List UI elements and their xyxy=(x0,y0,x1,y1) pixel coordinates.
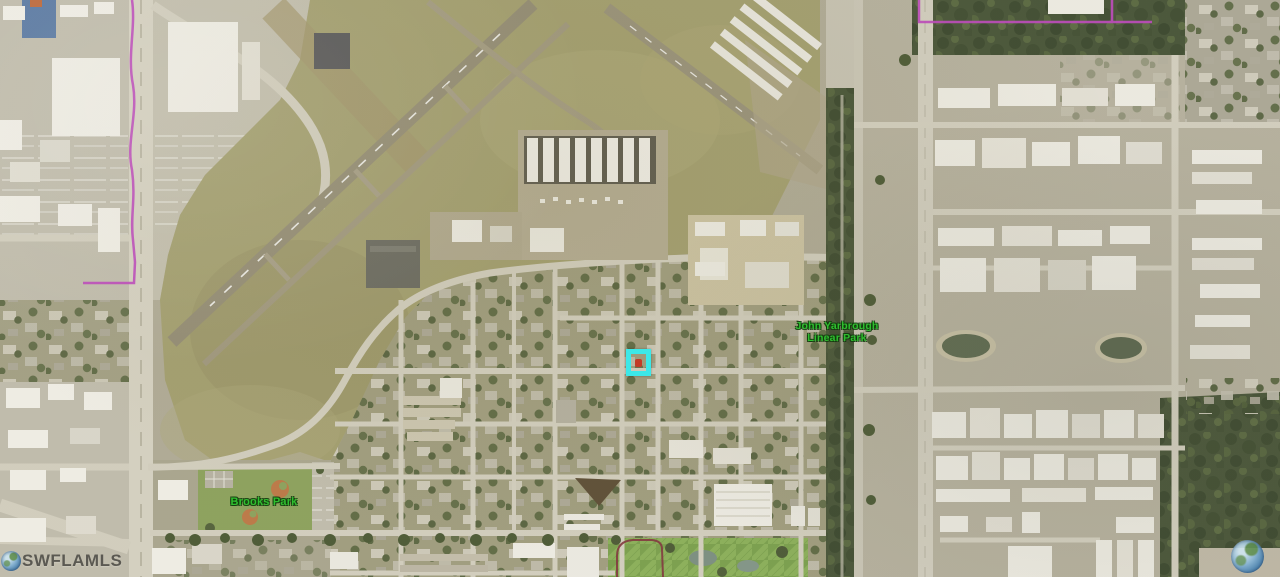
satellite-imagery xyxy=(0,0,1280,577)
mls-watermark: SWFLAMLS xyxy=(1,551,122,571)
globe-icon xyxy=(1231,540,1264,573)
label-line2: Linear Park xyxy=(782,332,892,344)
canal-corridor xyxy=(826,0,854,577)
aerial-map: John Yarbrough Linear Park Brooks Park S… xyxy=(0,0,1280,577)
label-line1: John Yarbrough xyxy=(782,320,892,332)
golf-course xyxy=(608,538,808,577)
watermark-text: SWFLAMLS xyxy=(22,551,122,571)
globe-icon xyxy=(1,551,21,571)
subject-property-marker xyxy=(626,349,651,376)
label-john-yarbrough-linear-park: John Yarbrough Linear Park xyxy=(782,320,892,344)
property-dot xyxy=(635,359,642,367)
label-brooks-park: Brooks Park xyxy=(212,496,316,509)
